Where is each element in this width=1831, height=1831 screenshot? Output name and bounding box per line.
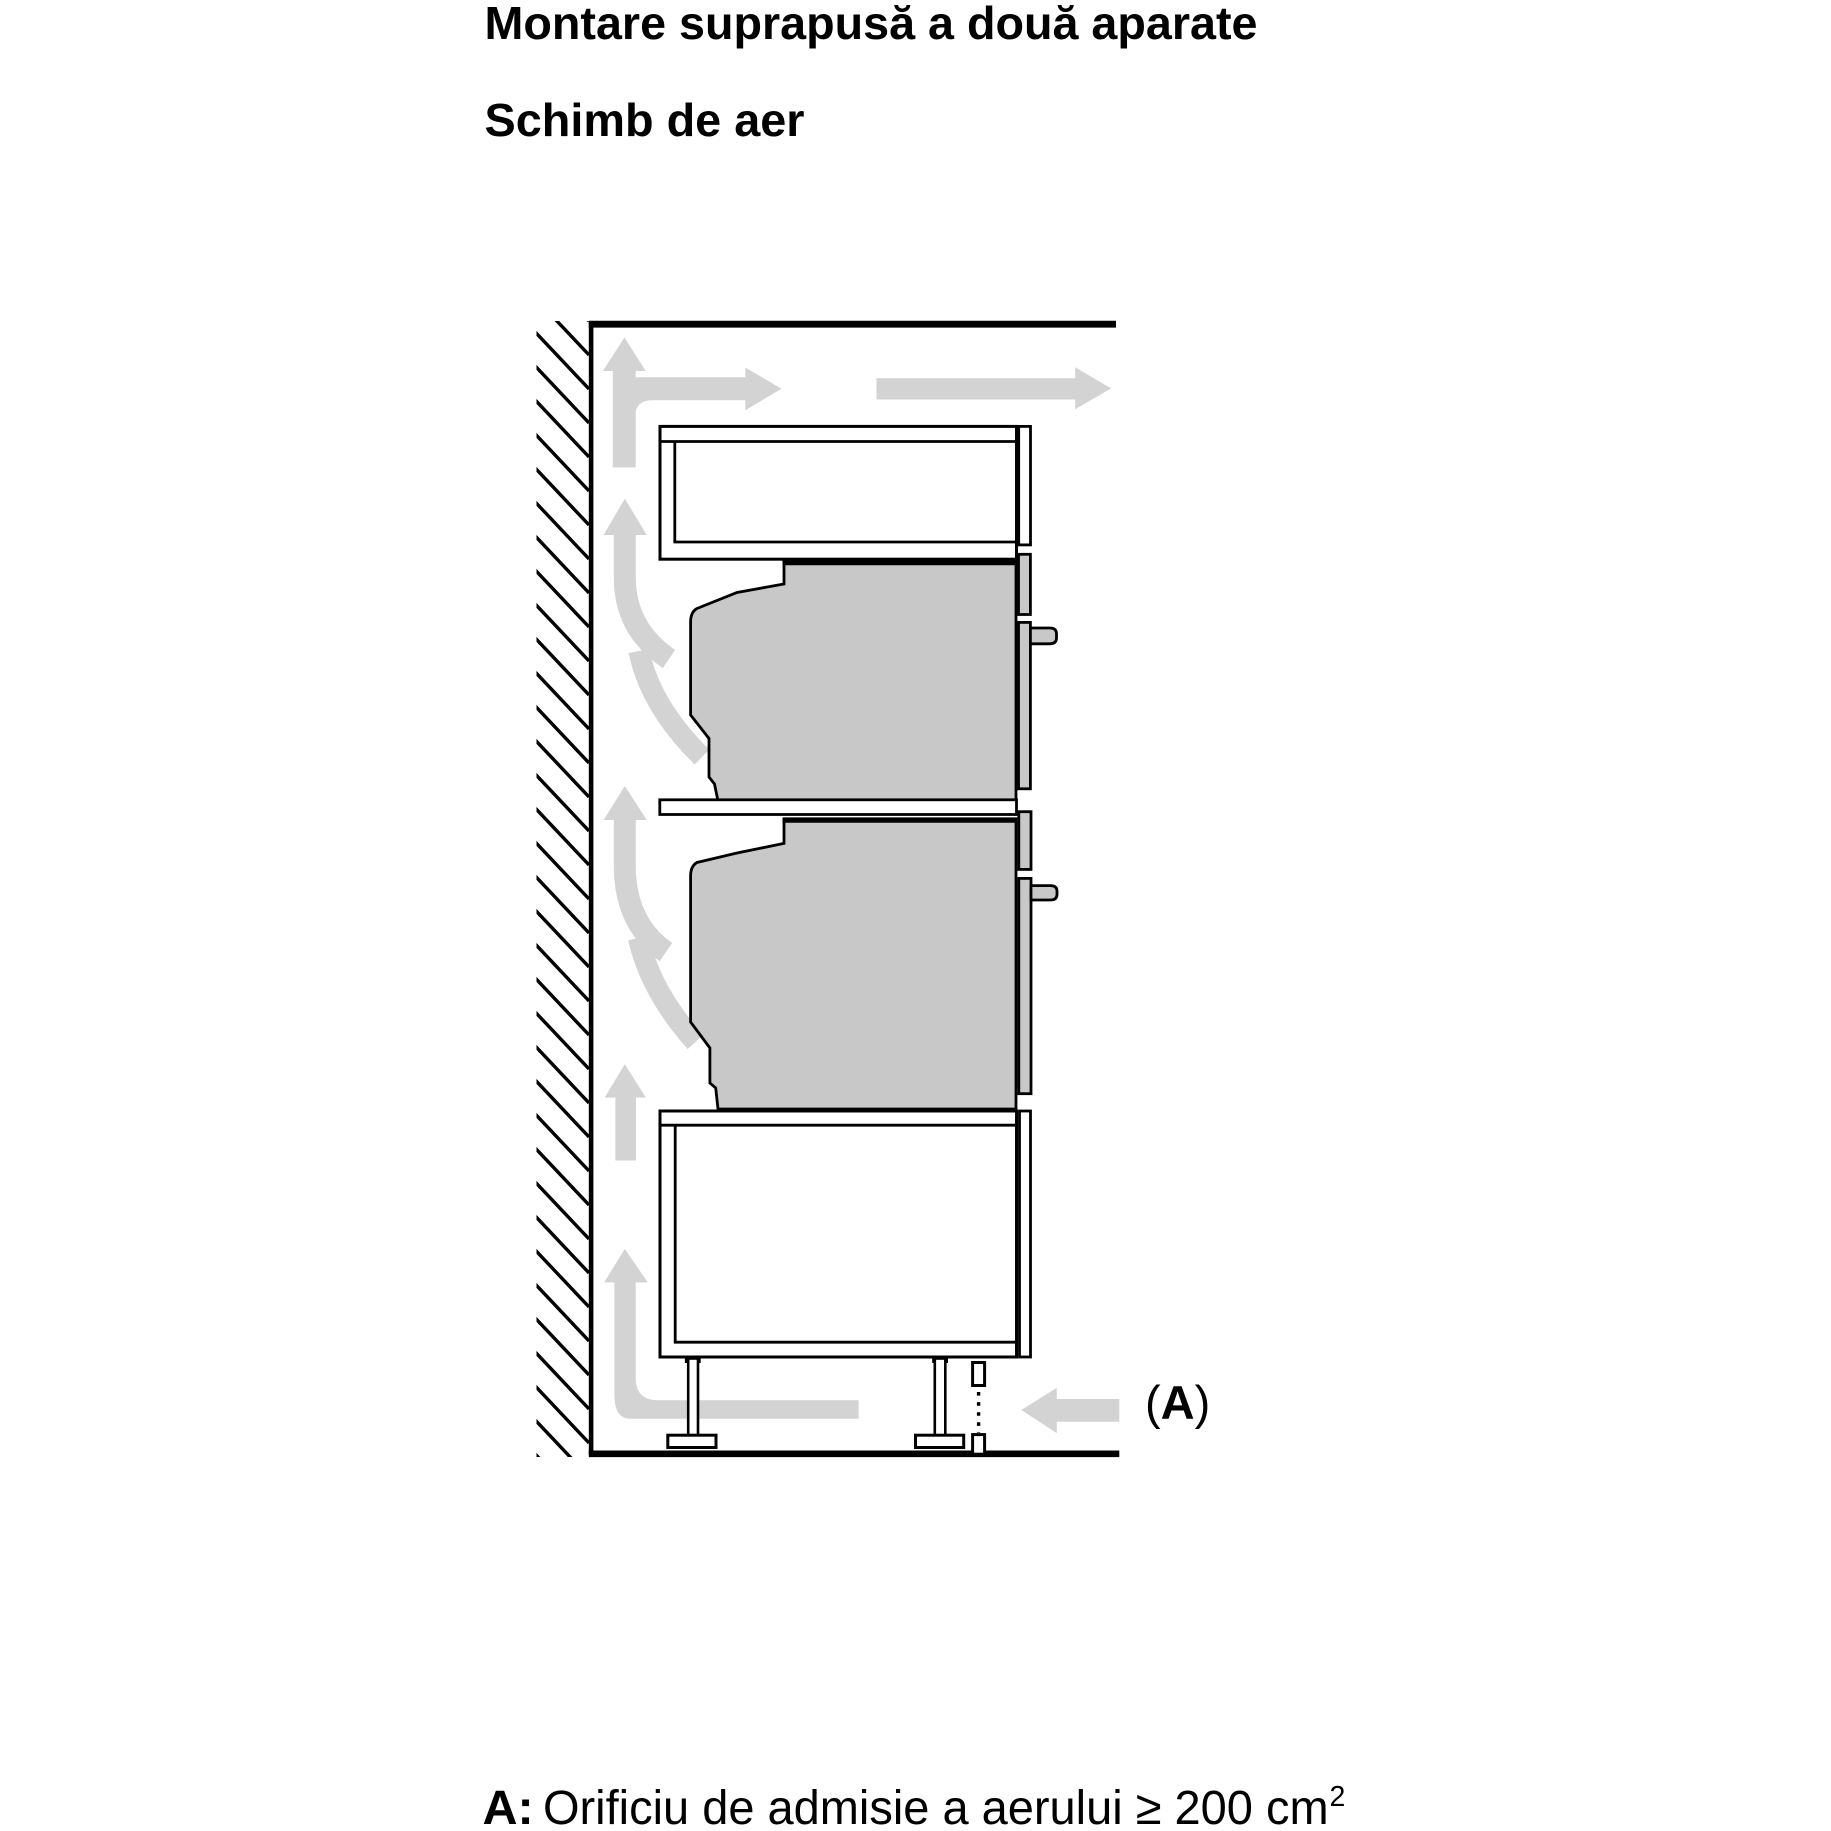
- svg-text:Montare suprapusă a două apara: Montare suprapusă a două aparate: [485, 0, 1258, 49]
- svg-text:(A): (A): [1145, 1376, 1210, 1429]
- svg-text:2: 2: [1330, 1781, 1346, 1813]
- svg-text:A:: A:: [483, 1781, 534, 1831]
- svg-text:Orificiu de admisie a aerului: Orificiu de admisie a aerului ≥ 200 cm: [543, 1781, 1329, 1831]
- svg-text:Schimb de aer: Schimb de aer: [485, 94, 805, 146]
